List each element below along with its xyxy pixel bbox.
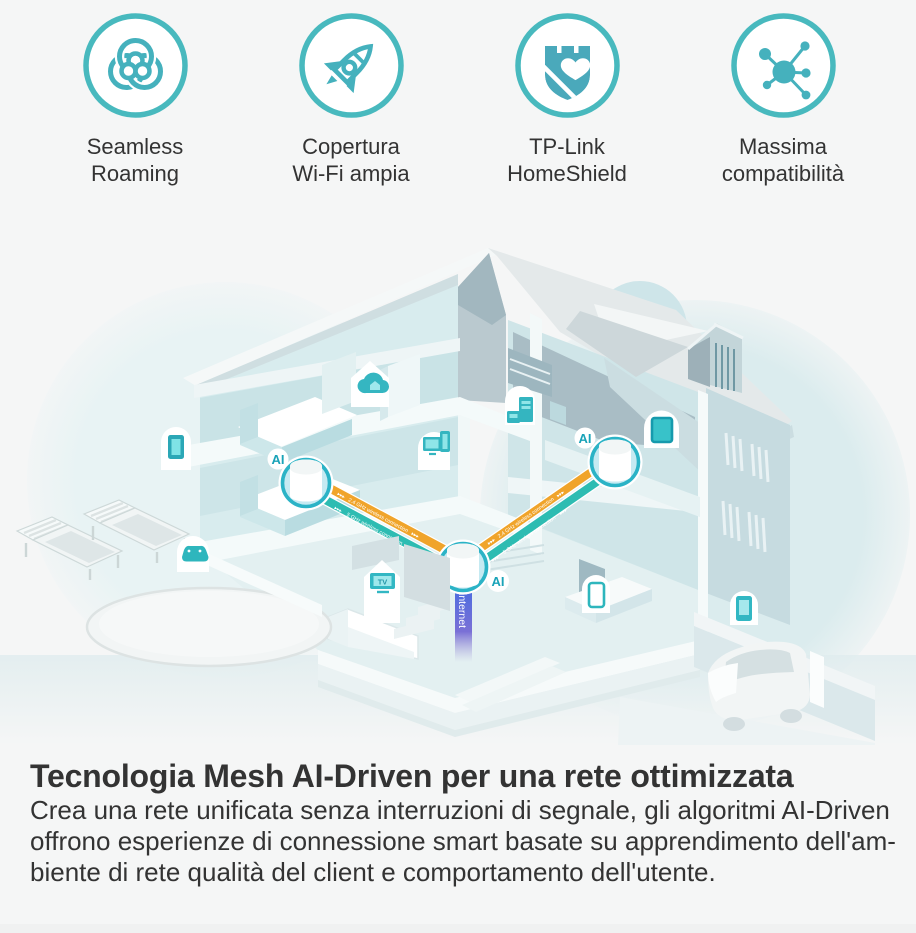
svg-text:TV: TV (378, 578, 388, 587)
svg-text:internet: internet (456, 593, 468, 628)
svg-text:AI: AI (272, 452, 285, 467)
svg-text:AI: AI (579, 431, 592, 446)
svg-text:AI: AI (492, 574, 505, 589)
